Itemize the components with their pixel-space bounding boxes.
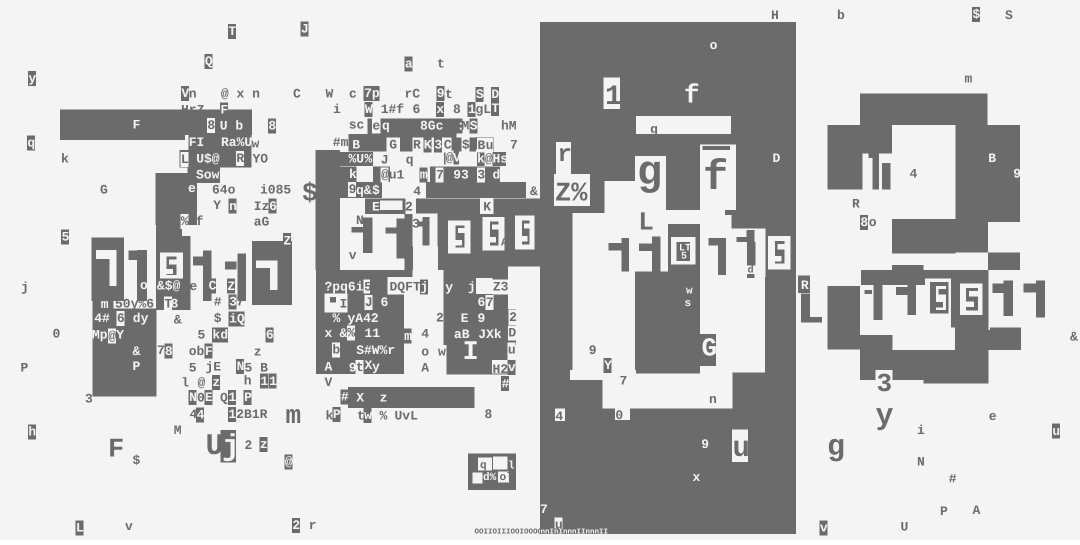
svg-text:f: f xyxy=(684,80,700,110)
svg-text:%: % xyxy=(365,152,373,167)
svg-text:b: b xyxy=(837,8,845,23)
svg-text:v: v xyxy=(508,360,516,375)
svg-text:5: 5 xyxy=(189,361,197,376)
svg-text:7: 7 xyxy=(236,295,244,310)
svg-text:x: x xyxy=(325,326,333,341)
svg-text:0: 0 xyxy=(615,408,623,423)
svg-text:f: f xyxy=(703,154,728,202)
svg-text:YO: YO xyxy=(253,152,269,167)
svg-text:v: v xyxy=(125,519,133,534)
svg-text:@ x n: @ x n xyxy=(221,87,260,102)
svg-text:P: P xyxy=(940,504,948,519)
svg-text:l: l xyxy=(181,376,189,391)
svg-text:$: $ xyxy=(972,7,980,22)
svg-text:nnInInnnIInnnII: nnInInnnIInnnII xyxy=(541,528,609,536)
svg-text:Hs: Hs xyxy=(493,152,509,167)
svg-text:b: b xyxy=(332,343,340,358)
svg-text:m: m xyxy=(420,168,428,183)
svg-text:E: E xyxy=(372,200,380,215)
svg-text:u: u xyxy=(508,343,516,358)
svg-text:L: L xyxy=(638,207,654,237)
svg-text:Q: Q xyxy=(237,312,245,327)
svg-text:o: o xyxy=(710,38,718,53)
svg-text:50y%6: 50y%6 xyxy=(115,297,154,312)
svg-text:K: K xyxy=(424,138,432,153)
svg-text:Z%: Z% xyxy=(555,179,588,209)
svg-text:&: & xyxy=(174,313,182,328)
svg-text:9: 9 xyxy=(437,86,445,101)
svg-text:z: z xyxy=(254,345,262,360)
svg-text:JXk: JXk xyxy=(478,327,502,342)
svg-text:U$@: U$@ xyxy=(196,152,220,167)
svg-text:1: 1 xyxy=(228,390,236,405)
svg-text:n: n xyxy=(709,392,717,407)
svg-text:j: j xyxy=(468,280,476,295)
svg-text:k: k xyxy=(477,152,485,167)
svg-text:h: h xyxy=(28,425,36,440)
svg-text:g: g xyxy=(637,149,662,197)
svg-text:5: 5 xyxy=(681,252,687,263)
svg-text:q&: q& xyxy=(356,183,372,198)
svg-text:$: $ xyxy=(214,311,222,326)
svg-text:1: 1 xyxy=(269,374,277,389)
svg-text:B: B xyxy=(478,138,486,153)
svg-text:D: D xyxy=(508,326,516,341)
svg-text:m: m xyxy=(286,401,302,431)
svg-text:q: q xyxy=(406,153,414,168)
svg-text:A: A xyxy=(501,237,508,249)
svg-text:R: R xyxy=(801,278,809,293)
svg-text:8: 8 xyxy=(171,297,179,312)
svg-text:ob: ob xyxy=(189,344,205,359)
svg-text:4: 4 xyxy=(910,167,918,182)
svg-text:t: t xyxy=(437,57,445,72)
svg-text:DQFT: DQFT xyxy=(390,280,421,295)
svg-text:w: w xyxy=(438,345,446,360)
svg-text:jE: jE xyxy=(206,360,222,375)
svg-text:d%: d% xyxy=(483,472,497,484)
svg-text:G: G xyxy=(702,333,718,363)
svg-text:o: o xyxy=(140,278,148,293)
svg-text:e: e xyxy=(190,279,198,294)
svg-text:$: $ xyxy=(133,453,141,468)
svg-text:2: 2 xyxy=(245,438,253,453)
svg-text:v: v xyxy=(820,521,828,536)
svg-text:B: B xyxy=(352,138,360,153)
svg-text:OOIIOIIIOOIOOOO: OOIIOIIIOOIOOOO xyxy=(475,527,543,536)
svg-text:y: y xyxy=(372,360,380,375)
svg-text:gL: gL xyxy=(476,102,492,117)
svg-text:9: 9 xyxy=(701,437,709,452)
svg-text:1: 1 xyxy=(260,374,268,389)
svg-text:0: 0 xyxy=(53,327,61,342)
svg-text:y: y xyxy=(28,71,36,86)
svg-text:U b: U b xyxy=(220,119,244,134)
svg-text:y: y xyxy=(445,280,453,295)
svg-text:Y: Y xyxy=(213,198,221,213)
svg-text:G: G xyxy=(389,138,397,153)
svg-text:R: R xyxy=(852,197,860,212)
svg-text:#: # xyxy=(214,295,222,310)
svg-text:3: 3 xyxy=(434,138,442,153)
svg-text:6: 6 xyxy=(266,328,274,343)
svg-text:u1: u1 xyxy=(389,168,405,183)
svg-text:X z: X z xyxy=(356,391,387,406)
svg-text:R: R xyxy=(413,138,421,153)
svg-text:4: 4 xyxy=(413,184,421,199)
svg-text:g: g xyxy=(827,431,845,465)
svg-text:F: F xyxy=(205,344,213,359)
svg-text:n: n xyxy=(229,199,237,214)
svg-text:7: 7 xyxy=(510,138,518,153)
svg-text:j: j xyxy=(21,280,29,295)
svg-text:A: A xyxy=(973,503,981,518)
svg-text:2: 2 xyxy=(436,311,444,326)
svg-text:Y: Y xyxy=(116,328,124,343)
svg-text:dy: dy xyxy=(133,311,149,326)
svg-text:&$@: &$@ xyxy=(157,279,181,294)
svg-text:5: 5 xyxy=(198,328,206,343)
svg-text:W: W xyxy=(365,102,373,117)
svg-text:T: T xyxy=(491,101,499,116)
svg-text:p: p xyxy=(372,86,380,101)
svg-text:#: # xyxy=(949,472,957,487)
svg-text:D: D xyxy=(491,87,499,102)
svg-text:6: 6 xyxy=(478,295,486,310)
svg-text:I: I xyxy=(340,297,348,312)
svg-text:d: d xyxy=(220,328,228,343)
svg-text:ol: ol xyxy=(500,472,514,484)
svg-text:D: D xyxy=(773,151,781,166)
svg-text:F: F xyxy=(108,435,124,465)
svg-text:8: 8 xyxy=(207,118,215,133)
svg-text:i085: i085 xyxy=(260,183,291,198)
svg-text:P: P xyxy=(133,359,141,374)
svg-text:Q: Q xyxy=(220,391,228,406)
svg-text:1: 1 xyxy=(605,82,622,113)
svg-text:3: 3 xyxy=(501,280,509,295)
svg-text:?pq6i: ?pq6i xyxy=(325,280,364,295)
svg-text:J: J xyxy=(301,22,309,37)
svg-text:@: @ xyxy=(198,376,206,391)
svg-text:s: s xyxy=(685,298,692,310)
svg-text:8: 8 xyxy=(453,102,461,117)
svg-text:5: 5 xyxy=(62,230,70,245)
svg-text:Ra%U: Ra%U xyxy=(221,135,252,150)
svg-text:E: E xyxy=(461,311,469,326)
svg-text:1#f: 1#f xyxy=(381,102,405,117)
svg-text:6: 6 xyxy=(381,295,389,310)
svg-text:3: 3 xyxy=(412,217,420,232)
svg-text:e: e xyxy=(989,409,997,424)
svg-text:N: N xyxy=(237,359,245,374)
svg-text:7: 7 xyxy=(364,86,372,101)
svg-text:E: E xyxy=(205,390,213,405)
svg-text:4#: 4# xyxy=(94,311,110,326)
svg-text:r: r xyxy=(309,518,317,533)
svg-text:M: M xyxy=(174,423,182,438)
svg-text:7: 7 xyxy=(486,295,494,310)
svg-text:q: q xyxy=(27,136,35,151)
svg-text:H: H xyxy=(771,8,779,23)
svg-text:K: K xyxy=(483,200,491,215)
svg-text:V: V xyxy=(453,151,461,166)
svg-text:k: k xyxy=(61,152,69,167)
svg-text:i: i xyxy=(333,102,341,117)
svg-text:4: 4 xyxy=(421,327,429,342)
svg-text:N: N xyxy=(189,390,197,405)
svg-text:J: J xyxy=(365,295,373,310)
svg-text:S: S xyxy=(1005,8,1013,23)
svg-text:$: $ xyxy=(302,178,318,208)
svg-text:U: U xyxy=(206,430,224,464)
svg-text:l: l xyxy=(508,460,515,472)
svg-text:h: h xyxy=(244,374,252,389)
svg-text:@: @ xyxy=(285,455,293,470)
svg-text:z: z xyxy=(260,437,268,452)
svg-text:8: 8 xyxy=(165,344,173,359)
svg-text:8: 8 xyxy=(860,215,868,230)
svg-text:n: n xyxy=(189,87,197,102)
svg-text:I: I xyxy=(463,338,479,368)
svg-text:6: 6 xyxy=(413,102,421,117)
svg-text:Q: Q xyxy=(205,54,213,69)
svg-text:S: S xyxy=(476,87,484,102)
svg-text:i: i xyxy=(229,312,237,327)
svg-text:u: u xyxy=(486,138,494,153)
svg-text:w: w xyxy=(686,285,693,297)
svg-text:4: 4 xyxy=(197,408,205,423)
svg-text:P: P xyxy=(333,407,341,422)
svg-text:Sow: Sow xyxy=(196,168,220,183)
svg-text:H2: H2 xyxy=(493,362,509,377)
svg-text:L: L xyxy=(76,521,84,536)
svg-text:C: C xyxy=(293,87,301,102)
svg-text:aG: aG xyxy=(254,215,270,230)
svg-text:&: & xyxy=(340,326,348,341)
svg-text:$: $ xyxy=(372,183,380,198)
svg-text:S#W%r: S#W%r xyxy=(356,343,395,358)
svg-text:8: 8 xyxy=(485,407,493,422)
svg-text:FI: FI xyxy=(189,135,205,150)
svg-text:3: 3 xyxy=(85,392,93,407)
svg-text:W c: W c xyxy=(326,87,357,102)
svg-text:%: % xyxy=(181,214,189,229)
svg-text:u: u xyxy=(1052,424,1060,439)
svg-text:u: u xyxy=(733,432,750,465)
svg-text:3: 3 xyxy=(877,369,893,399)
svg-text:d: d xyxy=(748,264,754,276)
svg-text:%: % xyxy=(347,326,355,341)
svg-text:7: 7 xyxy=(436,168,444,183)
svg-text:11: 11 xyxy=(365,326,381,341)
svg-text:9: 9 xyxy=(589,343,597,358)
svg-text:hM: hM xyxy=(501,119,517,134)
svg-text:%U: %U xyxy=(349,152,365,167)
svg-text:C: C xyxy=(209,279,217,294)
svg-text:w: w xyxy=(364,408,372,423)
svg-text:P: P xyxy=(244,390,252,405)
svg-text:x: x xyxy=(693,470,701,485)
svg-text:t: t xyxy=(356,360,364,375)
svg-text:#m: #m xyxy=(333,135,349,150)
svg-text:0: 0 xyxy=(197,391,205,406)
svg-text:e: e xyxy=(188,181,196,196)
svg-text:4: 4 xyxy=(555,409,563,424)
svg-text:%: % xyxy=(380,409,388,424)
svg-text:x: x xyxy=(436,102,444,117)
svg-text:Mp: Mp xyxy=(92,328,108,343)
svg-text:5: 5 xyxy=(364,280,372,295)
svg-text:o: o xyxy=(869,215,877,230)
svg-text:8Gc: 8Gc xyxy=(420,119,444,134)
svg-text:o: o xyxy=(421,345,429,360)
svg-text:d: d xyxy=(493,168,501,183)
svg-text:j: j xyxy=(420,280,428,295)
svg-text:F: F xyxy=(220,103,228,118)
svg-text:Z: Z xyxy=(227,279,235,294)
svg-text:yA42: yA42 xyxy=(348,311,379,326)
svg-text:6: 6 xyxy=(117,311,125,326)
svg-text:7: 7 xyxy=(157,343,165,358)
svg-text:%: % xyxy=(333,311,341,326)
svg-text:2: 2 xyxy=(405,200,413,215)
svg-text:$: $ xyxy=(462,138,470,153)
svg-text:m: m xyxy=(965,72,973,87)
svg-text:M: M xyxy=(462,119,470,134)
svg-text:q: q xyxy=(480,460,487,472)
svg-text:&: & xyxy=(1070,330,1078,345)
svg-text:v: v xyxy=(349,248,357,263)
svg-text:T: T xyxy=(228,24,236,39)
svg-text:&: & xyxy=(530,184,538,199)
svg-text:G: G xyxy=(100,183,108,198)
svg-text:&: & xyxy=(133,344,141,359)
svg-text:N: N xyxy=(356,213,364,228)
svg-text:3: 3 xyxy=(477,168,485,183)
svg-text:B: B xyxy=(988,151,996,166)
svg-text:k: k xyxy=(349,167,357,182)
svg-text:f: f xyxy=(196,214,204,229)
svg-text:@: @ xyxy=(108,329,116,344)
svg-text:7: 7 xyxy=(540,502,548,517)
svg-text:w: w xyxy=(252,137,260,152)
svg-text:y: y xyxy=(876,400,894,434)
svg-text:Iz: Iz xyxy=(254,199,270,214)
svg-text:a: a xyxy=(405,57,413,72)
svg-text:S: S xyxy=(470,119,478,134)
svg-text:N: N xyxy=(917,455,925,470)
svg-text:j: j xyxy=(222,431,240,465)
svg-text:z: z xyxy=(212,375,220,390)
svg-text:A: A xyxy=(325,360,333,375)
svg-text:g: g xyxy=(650,122,658,137)
svg-text:7: 7 xyxy=(620,374,628,389)
svg-text:#: # xyxy=(502,376,510,391)
svg-text:L: L xyxy=(181,152,189,167)
svg-text:U: U xyxy=(901,520,909,535)
svg-text:r: r xyxy=(558,142,572,169)
svg-text:64o: 64o xyxy=(212,183,236,198)
svg-text:A: A xyxy=(421,361,429,376)
svg-text:P: P xyxy=(21,361,29,376)
svg-text:#: # xyxy=(341,390,349,405)
svg-text:9: 9 xyxy=(1013,167,1021,182)
svg-text:2B1R: 2B1R xyxy=(236,407,267,422)
svg-text:e: e xyxy=(372,119,380,134)
svg-text:t: t xyxy=(445,87,453,102)
svg-text:8: 8 xyxy=(268,119,276,134)
svg-text:m: m xyxy=(101,297,109,312)
svg-text:2: 2 xyxy=(509,310,517,325)
svg-text:93: 93 xyxy=(453,168,469,183)
svg-text:Z: Z xyxy=(283,233,291,248)
svg-text:R: R xyxy=(236,151,244,166)
svg-text:6: 6 xyxy=(269,199,277,214)
svg-text:HrZ: HrZ xyxy=(181,103,205,118)
svg-text:Y: Y xyxy=(604,358,612,373)
svg-text:q: q xyxy=(382,119,390,134)
svg-text:k: k xyxy=(212,328,220,343)
svg-text:rC: rC xyxy=(405,87,421,102)
svg-text:UvL: UvL xyxy=(395,409,419,424)
svg-text:9: 9 xyxy=(478,311,486,326)
svg-text:J: J xyxy=(381,153,389,168)
svg-text:i: i xyxy=(917,423,925,438)
svg-text:1: 1 xyxy=(228,407,236,422)
svg-text:sc: sc xyxy=(349,118,365,133)
svg-text:2: 2 xyxy=(292,518,300,533)
svg-text:V: V xyxy=(325,375,333,390)
svg-text:F: F xyxy=(133,118,141,133)
svg-text:m: m xyxy=(404,329,412,344)
